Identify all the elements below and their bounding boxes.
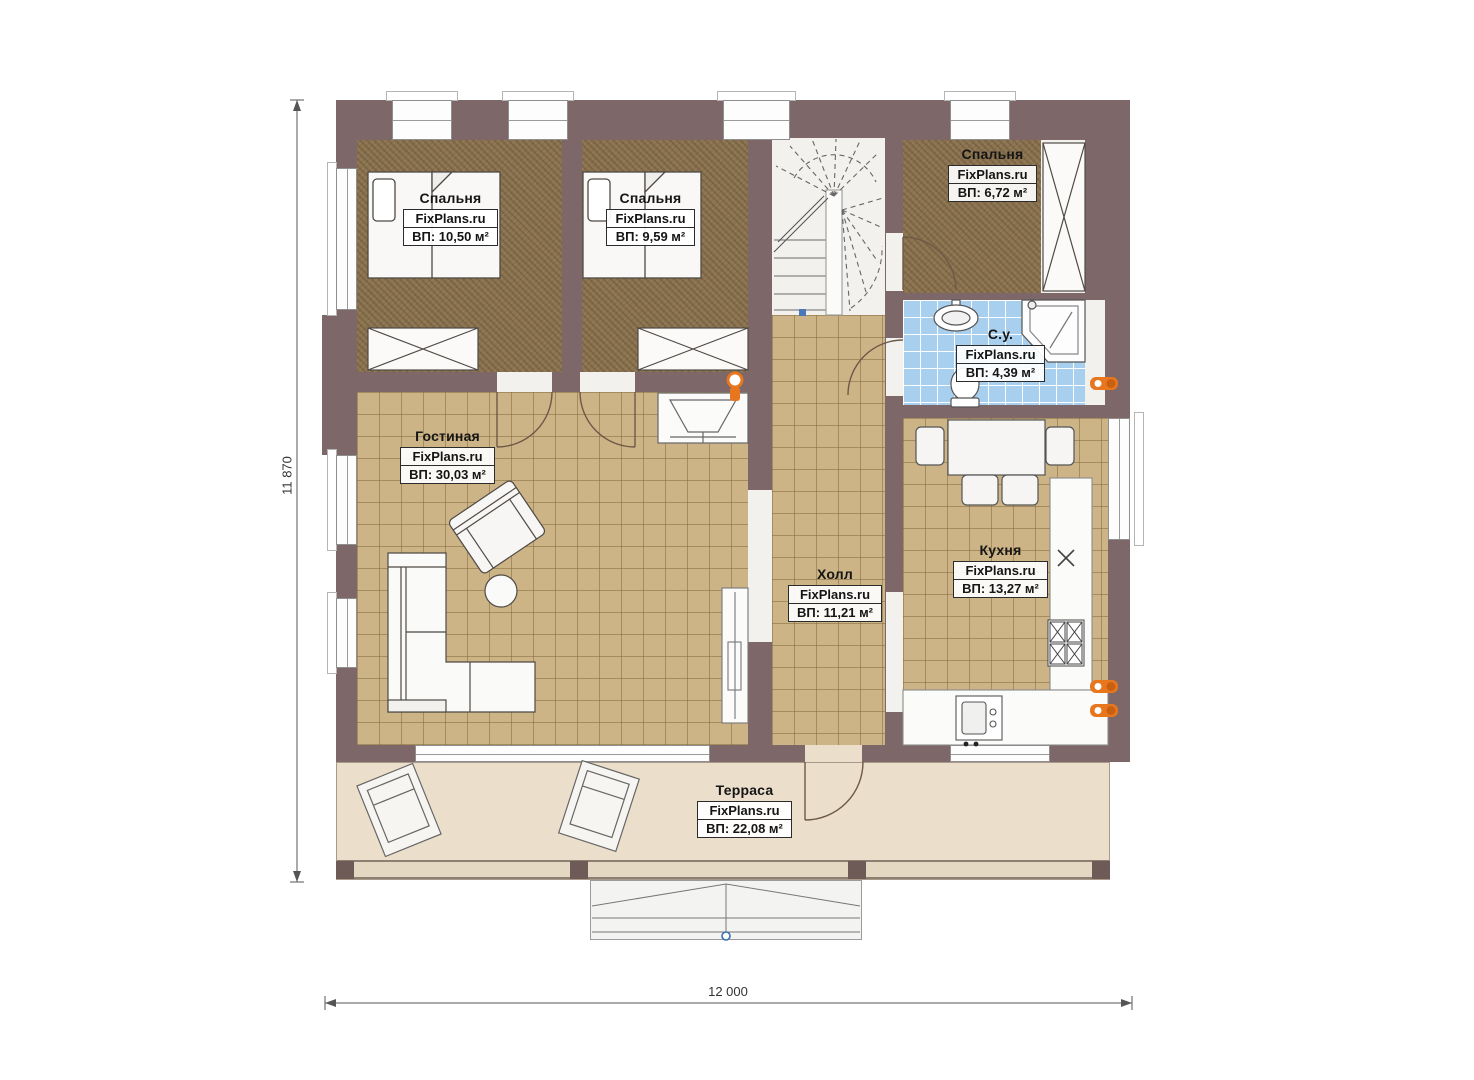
brand-label: FixPlans.ru bbox=[698, 802, 791, 819]
room-name: Спальня bbox=[920, 146, 1065, 162]
room-name: Спальня bbox=[578, 190, 723, 206]
window bbox=[950, 745, 1050, 762]
dimension-width: 12 000 bbox=[688, 984, 768, 999]
door-opening-bedroom2 bbox=[580, 372, 635, 392]
window bbox=[1108, 418, 1130, 540]
terrace-post bbox=[1092, 861, 1110, 879]
area-label: ВП: 6,72 м² bbox=[949, 183, 1035, 201]
door-opening-bedroom1 bbox=[497, 372, 552, 392]
room-label-boxes: FixPlans.ru ВП: 6,72 м² bbox=[948, 165, 1036, 202]
terrace-post bbox=[570, 861, 588, 879]
area-label: ВП: 9,59 м² bbox=[607, 227, 693, 245]
window bbox=[336, 168, 357, 310]
door-opening-terrace bbox=[805, 745, 862, 762]
floor-plan-canvas: Спальня FixPlans.ru ВП: 10,50 м² Спальня… bbox=[0, 0, 1474, 1080]
room-label-boxes: FixPlans.ru ВП: 11,21 м² bbox=[788, 585, 882, 622]
room-label-boxes: FixPlans.ru ВП: 22,08 м² bbox=[697, 801, 792, 838]
window-sill bbox=[1134, 412, 1144, 546]
room-label-boxes: FixPlans.ru ВП: 30,03 м² bbox=[400, 447, 495, 484]
room-floor-bedroom2 bbox=[582, 140, 748, 372]
room-label-hall: Холл FixPlans.ru ВП: 11,21 м² bbox=[765, 566, 905, 622]
room-floor-hall bbox=[772, 315, 885, 745]
brand-label: FixPlans.ru bbox=[404, 210, 497, 227]
door-opening-bathroom bbox=[886, 338, 903, 396]
door-opening-bedroom3 bbox=[886, 233, 903, 291]
window bbox=[336, 455, 357, 545]
room-label-bedroom2: Спальня FixPlans.ru ВП: 9,59 м² bbox=[578, 190, 723, 246]
brand-label: FixPlans.ru bbox=[949, 166, 1035, 183]
window bbox=[392, 100, 452, 140]
area-label: ВП: 22,08 м² bbox=[698, 819, 791, 837]
room-label-boxes: FixPlans.ru ВП: 4,39 м² bbox=[956, 345, 1044, 382]
brand-label: FixPlans.ru bbox=[954, 562, 1047, 579]
window bbox=[336, 598, 357, 668]
window bbox=[508, 100, 568, 140]
room-label-bedroom1: Спальня FixPlans.ru ВП: 10,50 м² bbox=[378, 190, 523, 246]
window-terrace-door bbox=[415, 745, 710, 762]
room-label-terrace: Терраса FixPlans.ru ВП: 22,08 м² bbox=[672, 782, 817, 838]
entrance-steps bbox=[590, 880, 862, 940]
bath-niche bbox=[1085, 300, 1105, 405]
room-name: Холл bbox=[765, 566, 905, 582]
room-label-bedroom3: Спальня FixPlans.ru ВП: 6,72 м² bbox=[920, 146, 1065, 202]
room-name: Терраса bbox=[672, 782, 817, 798]
window bbox=[723, 100, 790, 140]
terrace-post bbox=[336, 861, 354, 879]
dimension-height: 11 870 bbox=[280, 441, 295, 511]
terrace-post bbox=[848, 861, 866, 879]
room-label-living: Гостиная FixPlans.ru ВП: 30,03 м² bbox=[375, 428, 520, 484]
terrace-rail bbox=[337, 860, 1109, 879]
room-label-boxes: FixPlans.ru ВП: 10,50 м² bbox=[403, 209, 498, 246]
window bbox=[950, 100, 1010, 140]
area-label: ВП: 30,03 м² bbox=[401, 465, 494, 483]
room-label-boxes: FixPlans.ru ВП: 9,59 м² bbox=[606, 209, 694, 246]
room-name: Гостиная bbox=[375, 428, 520, 444]
brand-label: FixPlans.ru bbox=[401, 448, 494, 465]
room-label-kitchen: Кухня FixPlans.ru ВП: 13,27 м² bbox=[928, 542, 1073, 598]
area-label: ВП: 10,50 м² bbox=[404, 227, 497, 245]
brand-label: FixPlans.ru bbox=[607, 210, 693, 227]
area-label: ВП: 4,39 м² bbox=[957, 363, 1043, 381]
room-label-boxes: FixPlans.ru ВП: 13,27 м² bbox=[953, 561, 1048, 598]
room-name: Кухня bbox=[928, 542, 1073, 558]
area-label: ВП: 11,21 м² bbox=[789, 603, 881, 621]
brand-label: FixPlans.ru bbox=[789, 586, 881, 603]
room-floor-bedroom1 bbox=[357, 140, 562, 372]
stairwell-floor bbox=[772, 138, 885, 315]
area-label: ВП: 13,27 м² bbox=[954, 579, 1047, 597]
wall-bay-protrusion bbox=[322, 315, 358, 455]
room-name: С.у. bbox=[928, 326, 1073, 342]
room-name: Спальня bbox=[378, 190, 523, 206]
room-label-bathroom: С.у. FixPlans.ru ВП: 4,39 м² bbox=[928, 326, 1073, 382]
brand-label: FixPlans.ru bbox=[957, 346, 1043, 363]
